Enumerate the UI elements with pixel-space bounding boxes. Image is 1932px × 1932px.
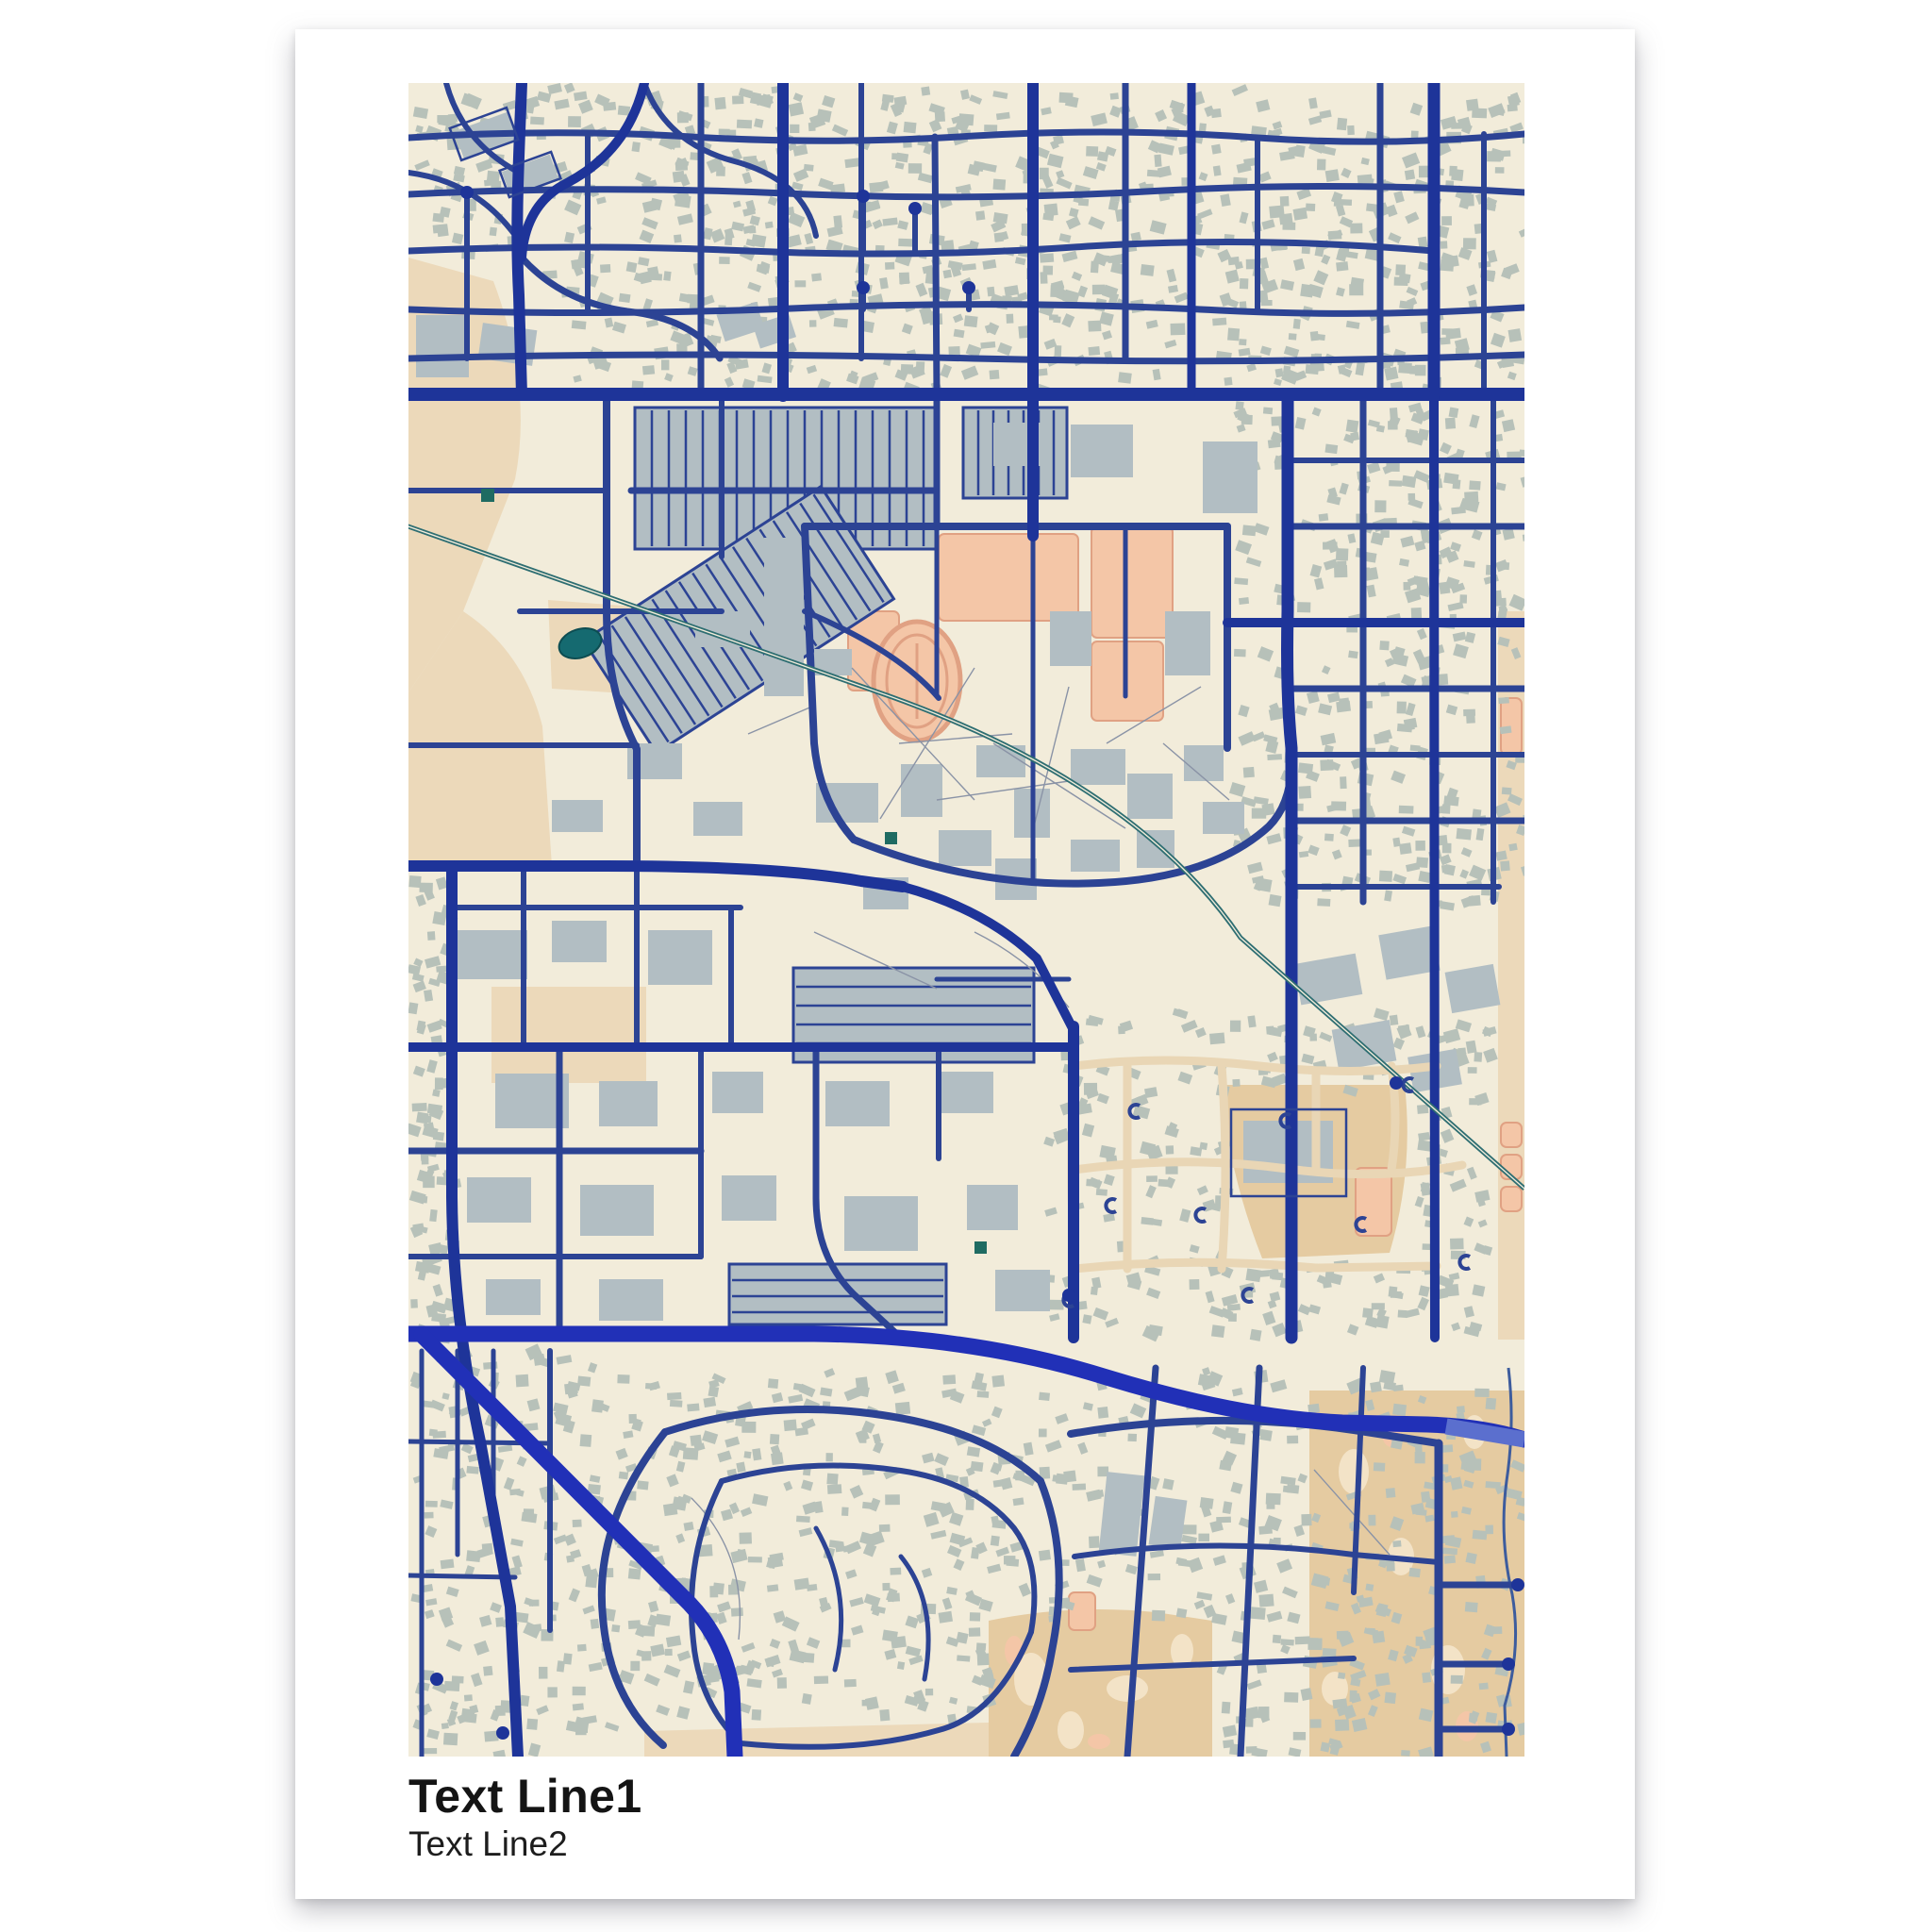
- poster-title: Text Line1: [408, 1771, 642, 1822]
- city-street-map: [408, 83, 1524, 1757]
- page-background: Text Line1 Text Line2: [0, 0, 1932, 1932]
- map-poster: Text Line1 Text Line2: [295, 29, 1635, 1899]
- poster-subtitle: Text Line2: [408, 1824, 642, 1863]
- map-canvas: [408, 83, 1524, 1757]
- poster-caption: Text Line1 Text Line2: [408, 1771, 642, 1863]
